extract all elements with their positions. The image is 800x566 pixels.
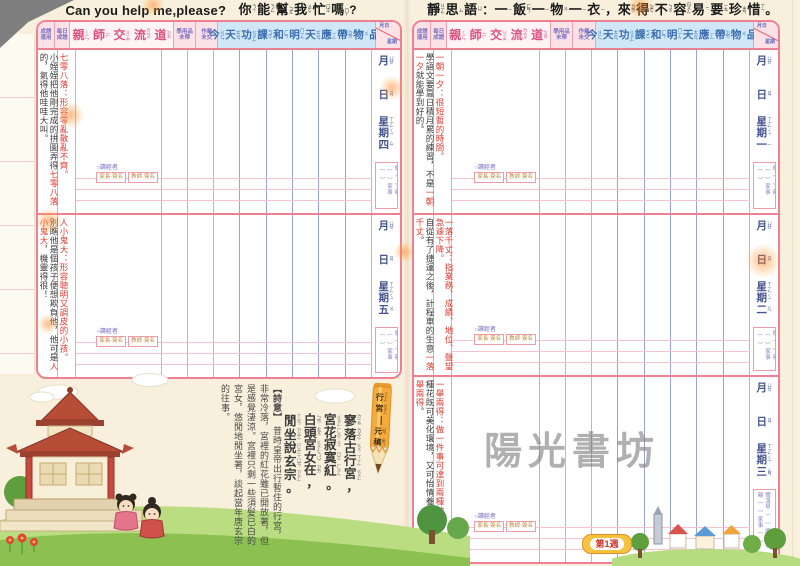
date-column: 月ㄩㄝˋ日ㄖˋ星ㄒㄧㄥ期ㄑㄧˊ二ㄦˋ體溫早（ ）晚（ ）親（ ）家事（ ） [750,215,778,375]
reader-check-label: ○讀經者 [474,324,536,333]
date-month: 月ㄩㄝˋ [750,220,778,232]
date-month: 月ㄩㄝˋ [750,55,778,67]
header-teacher-parent-exchange: 親ㄑㄧㄣ師ㄕ交ㄐㄧㄠ流ㄌㄧㄡˊ道ㄉㄠˋ [447,22,551,48]
adjacent-page-edges [0,34,35,374]
idiom-example-sentence: 別瞧他是個孩子便想欺負他，他可是人小鬼大，機靈得很！ [38,215,60,377]
date-weekday: 星ㄒㄧㄥ期ㄑㄧˊ三ㄙㄢ [750,443,778,478]
week-number-badge: 第1週 [582,534,632,554]
teacher-signature-box: 教師·簽名 [128,336,158,348]
parent-signature-box: 家長·簽名 [474,521,504,533]
date-column: 月ㄩㄝˋ日ㄖˋ星ㄒㄧㄥ期ㄑㄧˊ一ㄧ體溫早（ ）晚（ ）親（ ）家事（ ） [750,50,778,213]
header-idiom-usage: 成語運用 [38,22,55,48]
homework-list-cell [214,50,372,213]
table-header-row: 成語運用 每日成語 親ㄑㄧㄣ師ㄕ交ㄐㄧㄠ流ㄌㄧㄡˊ道ㄉㄠˋ 學用品未帶 作業未交… [414,22,778,50]
poem-line: 閒ㄒㄧㄢˊ坐ㄗㄨㄛˋ說ㄕㄨㄛ玄ㄒㄩㄢˊ宗ㄗㄨㄥ。 [284,414,301,494]
tower [654,514,662,544]
homework-subcolumn [319,50,345,213]
daily-idiom-column: 一落千丈：指業務、成績、地位、聲望急遽下降。 [434,215,452,375]
reader-check-label: ○讀經者 [96,326,158,335]
date-day: 日ㄖˋ [750,254,778,266]
homework-subcolumn [592,215,618,375]
homework-subcolumn [214,215,240,377]
date-day: 日ㄖˋ [372,89,400,101]
poem-meaning-header: 【詩意】 [272,384,282,422]
teacher-parent-exchange-cell: ○讀經者家長·簽名教師·簽名 [76,50,162,213]
pencil-icon: 行ㄒㄧㄥˊ宮ㄍㄨㄥ 元ㄩㄢˊ稹ㄓㄣˇ [357,378,403,490]
cloud-icon [132,374,168,387]
homework-subcolumn [697,50,723,213]
poem-meaning-text: 【詩意】昔時皇帝出行暫住的行宮，非常冷落，宮裡的紅花雖已開放著，但是感覺淒涼。宮… [218,384,283,548]
poem-title-author: 行ㄒㄧㄥˊ宮ㄍㄨㄥ 元ㄩㄢˊ稹ㄓㄣˇ [359,390,402,449]
idiom-example-sentence: 學語文要靠日積月累的練習，不是一朝一夕就能學到好的。 [414,50,436,213]
title-english: Can you help me,please? [65,3,226,18]
teacher-parent-exchange-cell: ○讀經者家長·簽名教師·簽名 [452,50,540,213]
town-illustration [612,506,800,566]
supplies-missing-cell [540,50,566,213]
reader-check-label: ○讀經者 [96,162,158,171]
date-month: 月ㄩㄝˋ [750,382,778,394]
temperature-check-box: 體溫早（ ）晚（ ）親（ ）家事（ ） [375,327,398,373]
left-day-sections: 小姪姪把他剛完成的拼圖弄得七零八落的，氣得他哇哇大叫。七零八落：形容零亂散亂不齊… [38,50,400,377]
homework-subcolumn [618,50,644,213]
signature-boxes: 家長·簽名教師·簽名 [474,172,536,184]
teacher-signature-box: 教師·簽名 [506,334,536,346]
signature-area: ○讀經者家長·簽名教師·簽名 [474,162,536,184]
parent-signature-box: 家長·簽名 [474,172,504,184]
homework-subcolumn [240,50,266,213]
date-weekday: 星ㄒㄧㄥ期ㄑㄧˊ五ㄨˇ [372,281,400,316]
idiom-example-sentence: 小姪姪把他剛完成的拼圖弄得七零八落的，氣得他哇哇大叫。 [38,50,60,213]
poem-line: 宮ㄍㄨㄥ花ㄏㄨㄚ寂ㄐㄧˊ寞ㄇㄛˋ紅ㄏㄨㄥˊ。 [324,414,341,494]
signature-boxes: 家長·簽名教師·簽名 [96,172,158,184]
homework-list-cell [214,215,372,377]
day-section: 自從有了捷運之後，計程車的生意一落千丈。一落千丈：指業務、成績、地位、聲望急遽下… [414,215,778,377]
teacher-parent-exchange-cell: ○讀經者家長·簽名教師·簽名 [76,215,162,377]
homework-missing-cell [188,50,214,213]
pillar [108,457,114,499]
header-supplies-missing: 學用品未帶 [174,22,196,48]
homework-missing-cell [566,215,592,375]
header-supplies-missing: 學用品未帶 [551,22,574,48]
tree [631,533,649,551]
poem-text: 寥ㄌㄧㄠˊ落ㄌㄨㄛˋ古ㄍㄨˇ行ㄒㄧㄥˊ宮ㄍㄨㄥ，宮ㄍㄨㄥ花ㄏㄨㄚ寂ㄐㄧˊ寞ㄇㄛˋ… [284,414,361,494]
parent-signature-box: 家長·簽名 [96,172,126,184]
header-today-homework: 今ㄐㄧㄣ天ㄊㄧㄢ功ㄍㄨㄥ課ㄎㄜˋ和ㄏㄢˋ明ㄇㄧㄥˊ天ㄊㄧㄢ應ㄧㄥ帶ㄉㄞˋ物ㄨˋ品… [218,22,376,48]
daily-idiom-column: 一朝一夕：很短暫的時間。 [434,50,452,213]
poem-line: 白ㄅㄞˊ頭ㄊㄡˊ宮ㄍㄨㄥ女ㄋㄩˇ在ㄗㄞˋ， [304,414,321,494]
table-header-row: 成語運用 每日成語 親ㄑㄧㄣ師ㄕ交ㄐㄧㄠ流ㄌㄧㄡˊ道ㄉㄠˋ 學用品未帶 作業未交… [38,22,400,50]
homework-subcolumn [645,215,671,375]
supplies-missing-cell [540,215,566,375]
jingsi-quote: 靜ㄐㄧㄥˋ思ㄙ語ㄩˇ：一ㄧ飯ㄈㄢˋ一ㄧ物ㄨˋ一ㄧ衣ㄧ，來ㄌㄞˊ得ㄉㄜˊ不ㄅㄨˋ容… [418,1,786,19]
teacher-signature-box: 教師·簽名 [506,521,536,533]
day-section: 別瞧他是個孩子便想欺負他，他可是人小鬼大，機靈得很！人小鬼大：形容聰明又調皮的小… [38,215,400,377]
house [670,534,686,548]
house [696,536,714,549]
idiom-definition: 七零八落：形容零亂散亂不齊。 [58,50,69,213]
signature-boxes: 家長·簽名教師·簽名 [474,334,536,346]
signature-boxes: 家長·簽名教師·簽名 [96,336,158,348]
signature-area: ○讀經者家長·簽名教師·簽名 [96,162,158,184]
left-page-title: Can you help me,please? 你ㄋㄧˇ能ㄋㄥˊ幫ㄅㄤ我ㄨㄛˇ忙… [56,1,366,19]
date-weekday: 星ㄒㄧㄥ期ㄑㄧˊ一ㄧ [750,116,778,151]
date-column: 月ㄩㄝˋ日ㄖˋ星ㄒㄧㄥ期ㄑㄧˊ五ㄨˇ體溫早（ ）晚（ ）親（ ）家事（ ） [372,215,400,377]
temperature-check-box: 體溫早（ ）晚（ ）親（ ）家事（ ） [375,162,398,209]
idiom-example-sentence: 自從有了捷運之後，計程車的生意一落千丈。 [414,215,436,375]
date-day: 日ㄖˋ [372,254,400,266]
signature-area: ○讀經者家長·簽名教師·簽名 [474,511,536,533]
teacher-signature-box: 教師·簽名 [506,172,536,184]
supplies-missing-cell [162,50,188,213]
header-date-cell: 月日 星期 [376,22,400,48]
date-day: 日ㄖˋ [750,89,778,101]
homework-subcolumn [267,215,293,377]
header-daily-idiom: 每日成語 [431,22,447,48]
header-idiom-usage: 成語運用 [414,22,431,48]
homework-subcolumn [240,215,266,377]
date-column: 月ㄩㄝˋ日ㄖˋ星ㄒㄧㄥ期ㄑㄧˊ四ㄙˋ體溫早（ ）晚（ ）親（ ）家事（ ） [372,50,400,213]
poem-author: 元ㄩㄢˊ稹ㄓㄣˇ [373,426,386,448]
homework-subcolumn [346,215,371,377]
homework-subcolumn [724,50,749,213]
teacher-signature-box: 教師·簽名 [128,172,158,184]
publisher-watermark: 陽光書坊 [484,420,660,475]
homework-subcolumn [293,215,319,377]
temperature-check-box: 體溫早（ ）晚（ ）親（ ）家事（ ） [753,162,776,209]
homework-subcolumn [346,50,371,213]
homework-subcolumn [671,215,697,375]
cloud-icon [315,389,355,403]
homework-list-cell [592,215,750,375]
platform [14,499,126,510]
homework-subcolumn [671,50,697,213]
header-date-cell: 月日 星期 [754,22,778,48]
homework-missing-cell [188,215,214,377]
homework-subcolumn [267,50,293,213]
day-section: 學語文要靠日積月累的練習，不是一朝一夕就能學到好的。一朝一夕：很短暫的時間。○讀… [414,50,778,215]
temperature-check-box: 體溫早（ ）晚（ ）親（ ）家事（ ） [753,327,776,371]
homework-subcolumn [724,215,749,375]
parent-signature-box: 家長·簽名 [96,336,126,348]
jingsi-text: 靜ㄐㄧㄥˋ思ㄙ語ㄩˇ：一ㄧ飯ㄈㄢˋ一ㄧ物ㄨˋ一ㄧ衣ㄧ，來ㄌㄞˊ得ㄉㄜˊ不ㄅㄨˋ容… [427,1,778,19]
poem-title: 行ㄒㄧㄥˊ宮ㄍㄨㄥ [375,391,388,414]
signature-area: ○讀經者家長·簽名教師·簽名 [474,324,536,346]
idiom-definition: 一朝一夕：很短暫的時間。 [434,50,445,213]
signature-area: ○讀經者家長·簽名教師·簽名 [96,326,158,348]
idiom-usage-column: 別瞧他是個孩子便想欺負他，他可是人小鬼大，機靈得很！ [38,215,58,377]
homework-subcolumn [592,50,618,213]
title-chinese: 你ㄋㄧˇ能ㄋㄥˊ幫ㄅㄤ我ㄨㄛˇ忙ㄇㄤˊ嗎˙ㄇㄚ? [238,1,356,19]
date-weekday: 星ㄒㄧㄥ期ㄑㄧˊ二ㄦˋ [750,281,778,316]
idiom-usage-column: 自從有了捷運之後，計程車的生意一落千丈。 [414,215,434,375]
header-daily-idiom: 每日成語 [55,22,70,48]
tower-spire [654,506,662,514]
parent-signature-box: 家長·簽名 [474,334,504,346]
header-today-homework: 今ㄐㄧㄣ天ㄊㄧㄢ功ㄍㄨㄥ課ㄎㄜˋ和ㄏㄢˋ明ㄇㄧㄥˊ天ㄊㄧㄢ應ㄧㄥ帶ㄉㄞˋ物ㄨˋ品… [596,22,754,48]
right-page-edge [792,0,793,566]
homework-subcolumn [319,215,345,377]
header-teacher-parent-exchange: 親ㄑㄧㄣ師ㄕ交ㄐㄧㄠ流ㄌㄧㄡˊ道ㄉㄠˋ [70,22,174,48]
homework-subcolumn [645,50,671,213]
signature-boxes: 家長·簽名教師·簽名 [474,521,536,533]
house [724,534,739,548]
homework-subcolumn [618,215,644,375]
daily-idiom-column: 七零八落：形容零亂散亂不齊。 [58,50,76,213]
homework-subcolumn [214,50,240,213]
supplies-missing-cell [162,215,188,377]
homework-subcolumn [293,50,319,213]
reader-check-label: ○讀經者 [474,511,536,520]
idiom-definition: 一落千丈：指業務、成績、地位、聲望急遽下降。 [434,215,454,375]
idiom-usage-column: 學語文要靠日積月累的練習，不是一朝一夕就能學到好的。 [414,50,434,213]
date-weekday: 星ㄒㄧㄥ期ㄑㄧˊ四ㄙˋ [372,116,400,151]
homework-subcolumn [697,215,723,375]
teacher-parent-exchange-cell: ○讀經者家長·簽名教師·簽名 [452,215,540,375]
tree [764,528,786,550]
idiom-usage-column: 小姪姪把他剛完成的拼圖弄得七零八落的，氣得他哇哇大叫。 [38,50,58,213]
reader-check-label: ○讀經者 [474,162,536,171]
homework-list-cell [592,50,750,213]
date-month: 月ㄩㄝˋ [372,55,400,67]
day-section: 小姪姪把他剛完成的拼圖弄得七零八落的，氣得他哇哇大叫。七零八落：形容零亂散亂不齊… [38,50,400,215]
pillar [26,457,32,499]
daily-idiom-column: 人小鬼大：形容聰明又調皮的小孩。 [58,215,76,377]
scanned-contact-book-spread: Can you help me,please? 你ㄋㄧˇ能ㄋㄥˊ幫ㄅㄤ我ㄨㄛˇ忙… [0,0,800,566]
idiom-definition: 人小鬼大：形容聰明又調皮的小孩。 [58,215,69,377]
homework-missing-cell [566,50,592,213]
weekly-table-left: 成語運用 每日成語 親ㄑㄧㄣ師ㄕ交ㄐㄧㄠ流ㄌㄧㄡˊ道ㄉㄠˋ 學用品未帶 作業未交… [36,20,402,379]
tree [743,535,761,553]
date-day: 日ㄖˋ [750,416,778,428]
date-month: 月ㄩㄝˋ [372,220,400,232]
